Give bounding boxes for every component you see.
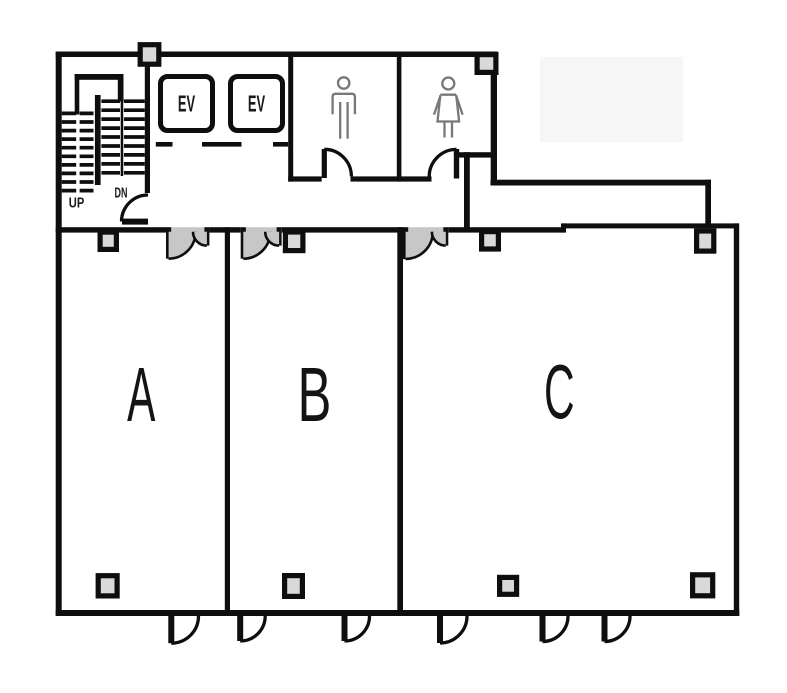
svg-text:EV: EV: [178, 91, 195, 117]
svg-text:DN: DN: [115, 184, 128, 201]
svg-text:B: B: [297, 351, 331, 437]
svg-text:C: C: [544, 351, 575, 437]
svg-text:UP: UP: [69, 194, 85, 211]
svg-text:EV: EV: [248, 91, 265, 117]
svg-text:A: A: [127, 353, 156, 439]
